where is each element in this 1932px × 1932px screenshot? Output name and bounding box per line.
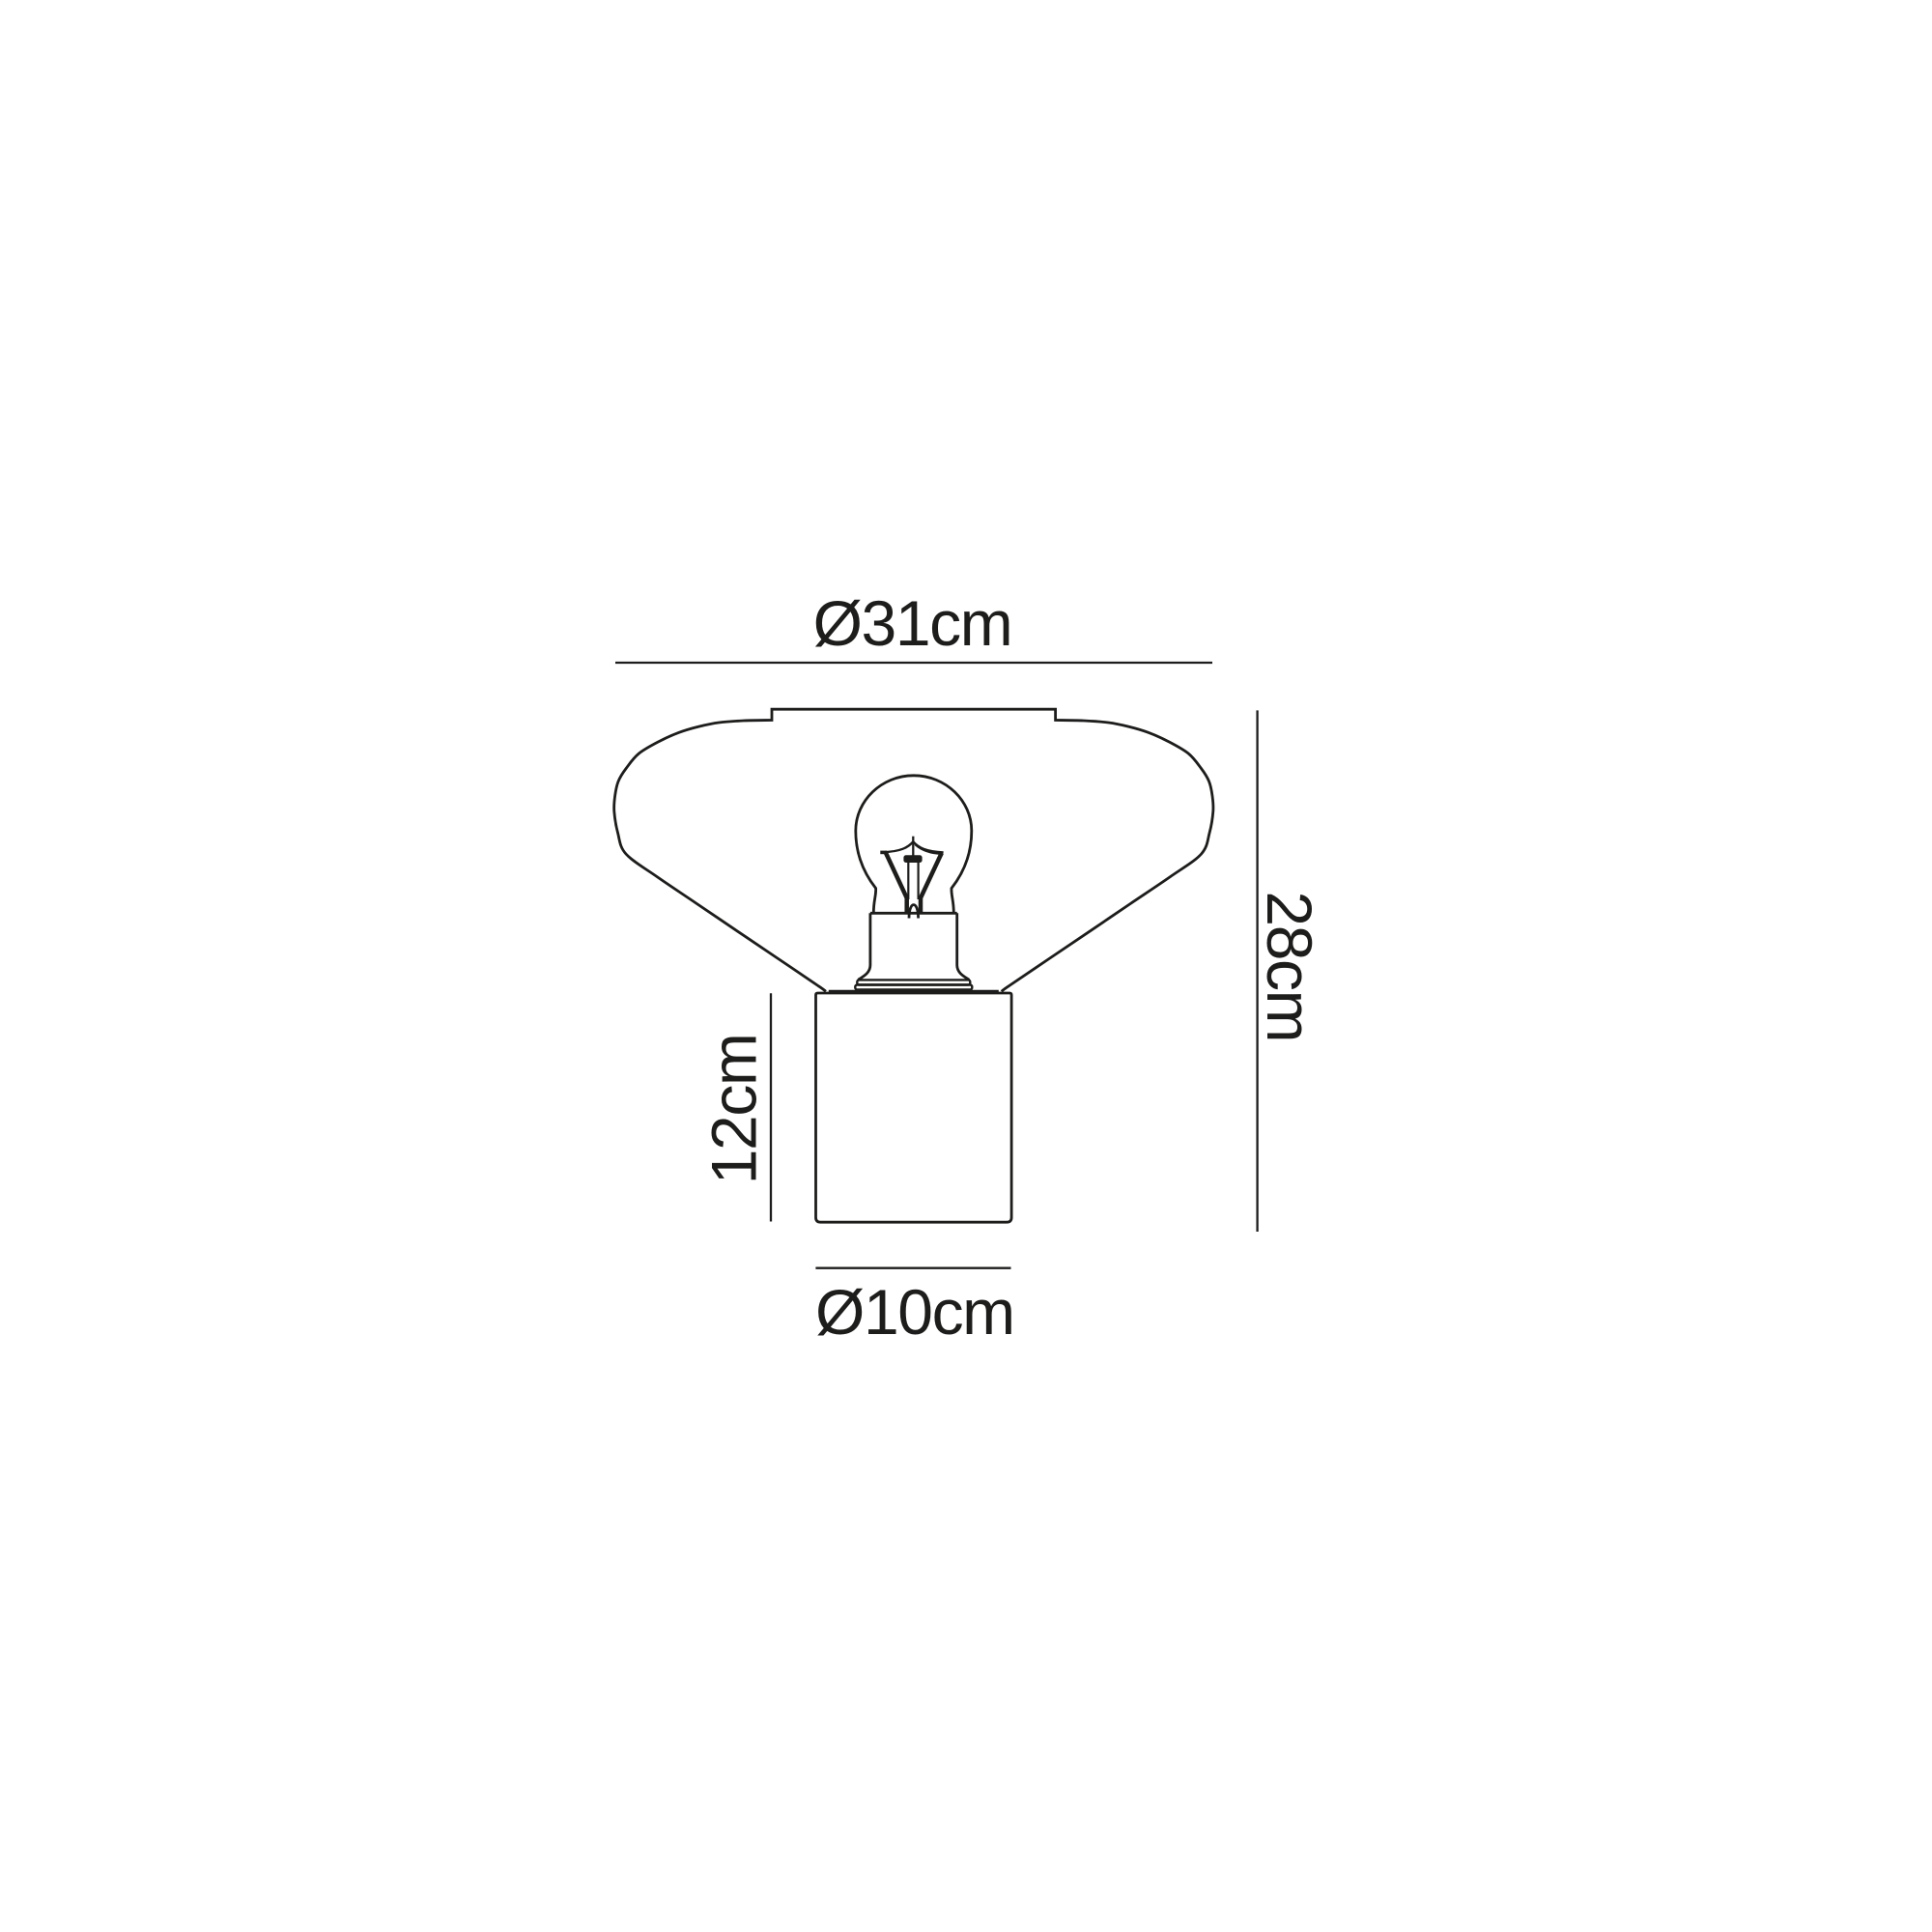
svg-text:12cm: 12cm <box>698 1035 770 1185</box>
svg-text:Ø10cm: Ø10cm <box>815 1276 1014 1348</box>
svg-text:Ø31cm: Ø31cm <box>813 587 1012 659</box>
svg-text:28cm: 28cm <box>1254 891 1325 1041</box>
